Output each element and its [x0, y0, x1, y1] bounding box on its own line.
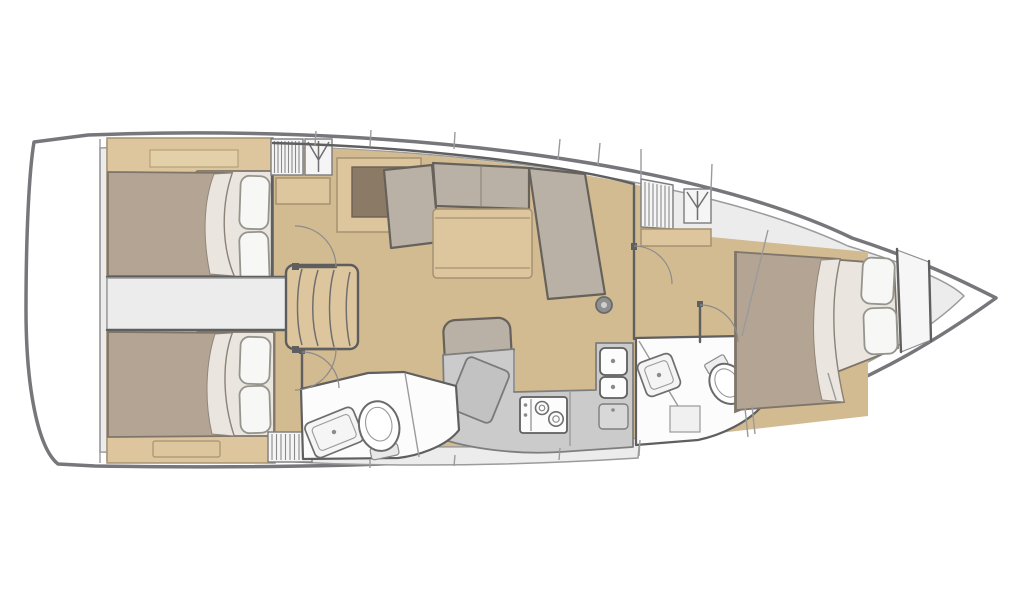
pillow: [239, 385, 271, 433]
aft-cabin-port: [107, 138, 287, 291]
pillow: [861, 257, 895, 305]
head-step: [670, 406, 700, 432]
settee-cushion: [384, 165, 439, 248]
galley-sink: [600, 348, 627, 398]
galley-locker: [599, 404, 628, 429]
aft-passage: [107, 278, 287, 330]
wardrobe-icon: [684, 189, 711, 223]
pillow: [239, 176, 270, 230]
yacht-floor-plan: [0, 0, 1024, 600]
pillow: [239, 336, 271, 384]
pillow: [863, 307, 898, 354]
salon-sideboard: [276, 178, 330, 204]
mast-post: [596, 297, 612, 313]
anchor-locker: [897, 249, 931, 352]
salon-table: [433, 209, 532, 278]
forward-cabin: [735, 252, 898, 412]
louver-locker: [641, 179, 673, 229]
stove: [520, 397, 567, 433]
floor-plan-canvas: [0, 0, 1024, 600]
aft-cabin-starboard: [107, 330, 287, 463]
shelf-hatch: [150, 150, 238, 167]
companionway-steps: [286, 265, 358, 349]
aft-head: [301, 372, 459, 462]
bow-sideboard: [641, 229, 711, 246]
